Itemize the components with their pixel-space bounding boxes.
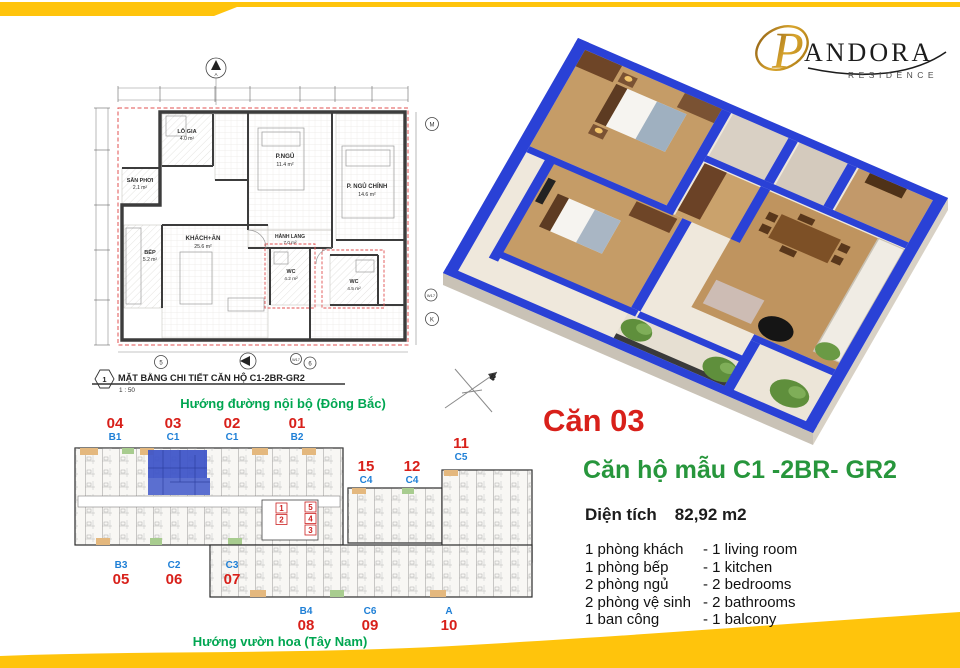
room-area: 4.0 m² [180, 136, 195, 142]
unit-number: 02 [224, 415, 241, 432]
room-floors [122, 114, 405, 340]
unit-type: C1 [167, 432, 180, 443]
area-line: Diện tích82,92 m2 [585, 505, 747, 525]
core-number: 1 [279, 504, 284, 513]
room-area: 11.4 m² [276, 162, 293, 168]
model-unit-title: Căn hộ mẫu C1 -2BR- GR2 [583, 456, 897, 485]
site-top-unit-labels: 04 B1 03 C1 02 C1 01 B2 [107, 415, 306, 443]
unit-number: 07 [224, 571, 241, 588]
unit-number: 08 [298, 617, 315, 634]
unit-type: B2 [291, 432, 304, 443]
room-label: P. NGỦ CHÍNH [347, 182, 388, 190]
unit-number: 09 [362, 617, 379, 634]
core-number: 4 [308, 515, 313, 524]
unit-type: B1 [109, 432, 122, 443]
room-label: LÔ GIA [177, 127, 196, 135]
brochure-page: { "brand": { "script_letter": "P", "name… [0, 0, 960, 668]
site-right-top-block [348, 488, 442, 543]
unit-type: C3 [226, 560, 239, 571]
unit-number: 01 [289, 415, 306, 432]
direction-top-label: Hướng đường nội bộ (Đông Bắc) [180, 396, 386, 411]
room-list-row: 1 ban công - 1 balcony [585, 611, 797, 629]
core-number: 5 [308, 503, 313, 512]
unit-type: C5 [455, 452, 468, 463]
north-arrow-label: A [214, 72, 218, 77]
unit-type: C2 [168, 560, 181, 571]
room-en: - 2 bathrooms [703, 594, 796, 612]
unit-type: B4 [300, 606, 313, 617]
unit-number: 04 [107, 415, 124, 432]
unit-number: 03 [165, 415, 182, 432]
area-label: Diện tích [585, 505, 657, 524]
unit-big-label: Căn 03 [543, 403, 645, 439]
unit-type: A [445, 606, 452, 617]
room-list: 1 phòng khách - 1 living room 1 phòng bế… [585, 541, 797, 629]
unit-number: 15 [358, 458, 375, 475]
room-list-row: 2 phòng vệ sinh - 2 bathrooms [585, 594, 797, 612]
unit-number: 10 [441, 617, 458, 634]
room-label: P.NGỦ [276, 153, 295, 160]
room-vi: 2 phòng ngủ [585, 576, 703, 594]
area-value: 82,92 m2 [675, 505, 747, 524]
room-area: 4.2 m² [284, 276, 298, 282]
site-bottom-right-unit-labels: B4 08 C6 09 A 10 [298, 606, 458, 634]
room-en: - 2 bedrooms [703, 576, 791, 594]
unit-type: C6 [364, 606, 377, 617]
unit-number: 12 [404, 458, 421, 475]
room-vi: 1 ban công [585, 611, 703, 629]
room-list-row: 2 phòng ngủ - 2 bedrooms [585, 576, 797, 594]
room-area: 2.1 m² [133, 185, 148, 191]
room-area: 5.2 m² [143, 257, 158, 263]
detail-floor-plan: LÔ GIA 4.0 m² SÂN PHƠI 2.1 m² P.NGỦ 11.4… [55, 50, 440, 396]
room-area: 14.6 m² [358, 192, 376, 198]
site-highlighted-unit-03 [148, 450, 210, 495]
room-en: - 1 living room [703, 541, 797, 559]
room-en: - 1 balcony [703, 611, 776, 629]
room-vi: 2 phòng vệ sinh [585, 594, 703, 612]
room-vi: 1 phòng bếp [585, 559, 703, 577]
site-plan: B 1 2 5 [55, 360, 540, 650]
room-area: 25.6 m² [194, 244, 212, 250]
room-list-row: 1 phòng khách - 1 living room [585, 541, 797, 559]
unit-number: 05 [113, 571, 130, 588]
room-area: 7.0 m² [283, 240, 296, 245]
site-compass-icon [445, 369, 497, 412]
site-bottom-block [210, 545, 532, 597]
room-label: WC [287, 269, 296, 275]
core-number: 2 [279, 516, 284, 525]
core-number: 3 [308, 526, 313, 535]
site-core: 1 2 5 4 3 [262, 500, 318, 540]
room-label: BẾP [144, 249, 156, 256]
room-label: HÀNH LANG [275, 233, 305, 240]
unit-type: C4 [406, 475, 419, 486]
room-vi: 1 phòng khách [585, 541, 703, 559]
unit-type: C4 [360, 475, 373, 486]
room-list-row: 1 phòng bếp - 1 kitchen [585, 559, 797, 577]
room-label: KHÁCH+ĂN [186, 235, 221, 242]
direction-bottom-label: Hướng vườn hoa (Tây Nam) [193, 634, 368, 649]
room-en: - 1 kitchen [703, 559, 772, 577]
unit-number: 06 [166, 571, 183, 588]
unit-type: B3 [115, 560, 128, 571]
unit-type: C1 [226, 432, 239, 443]
room-area: 4.5 m² [347, 286, 361, 292]
room-label: WC [350, 279, 359, 285]
room-label: SÂN PHƠI [127, 177, 154, 184]
unit-number: 11 [453, 435, 469, 452]
